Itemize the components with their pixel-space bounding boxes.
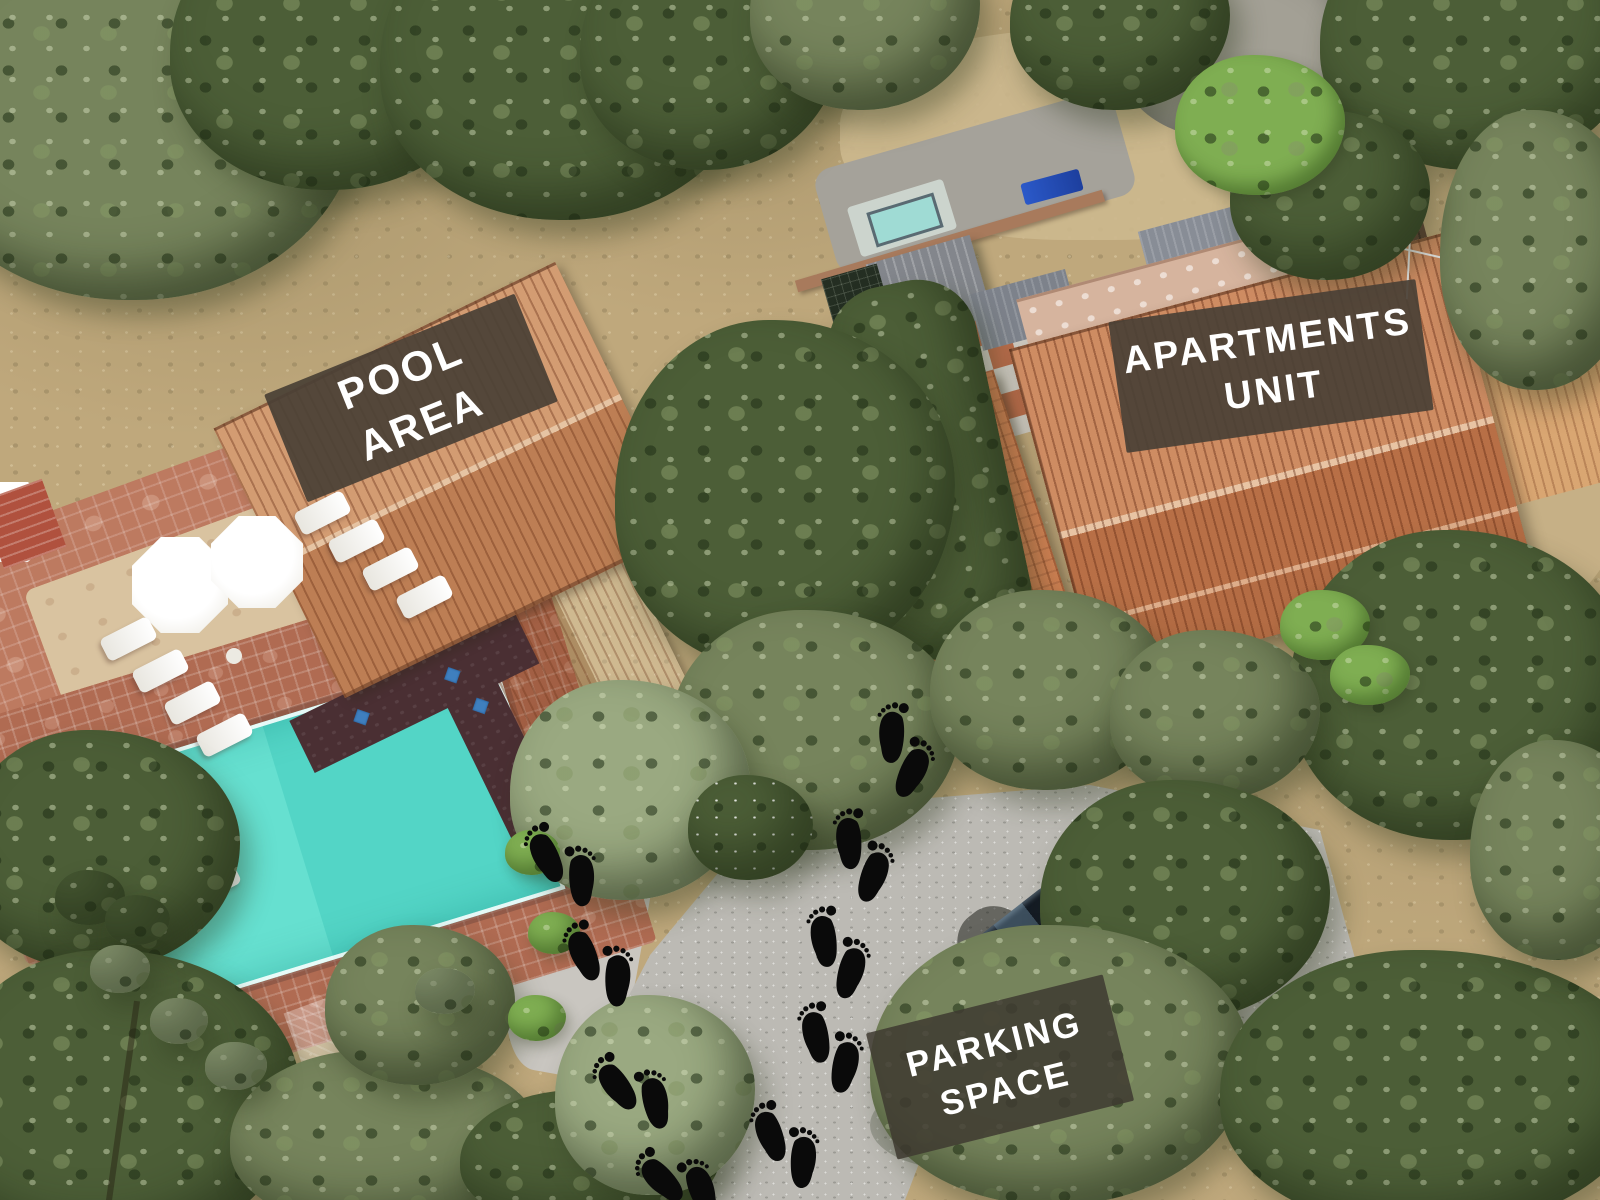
- patio-table: [226, 648, 242, 664]
- tree-canopy: [1110, 630, 1320, 800]
- blue-tile: [353, 709, 370, 726]
- blue-tile: [444, 667, 461, 684]
- blue-tile: [472, 698, 489, 715]
- aerial-photo: POOL AREA APARTMENTS UNIT PARKING SPACE: [0, 0, 1600, 1200]
